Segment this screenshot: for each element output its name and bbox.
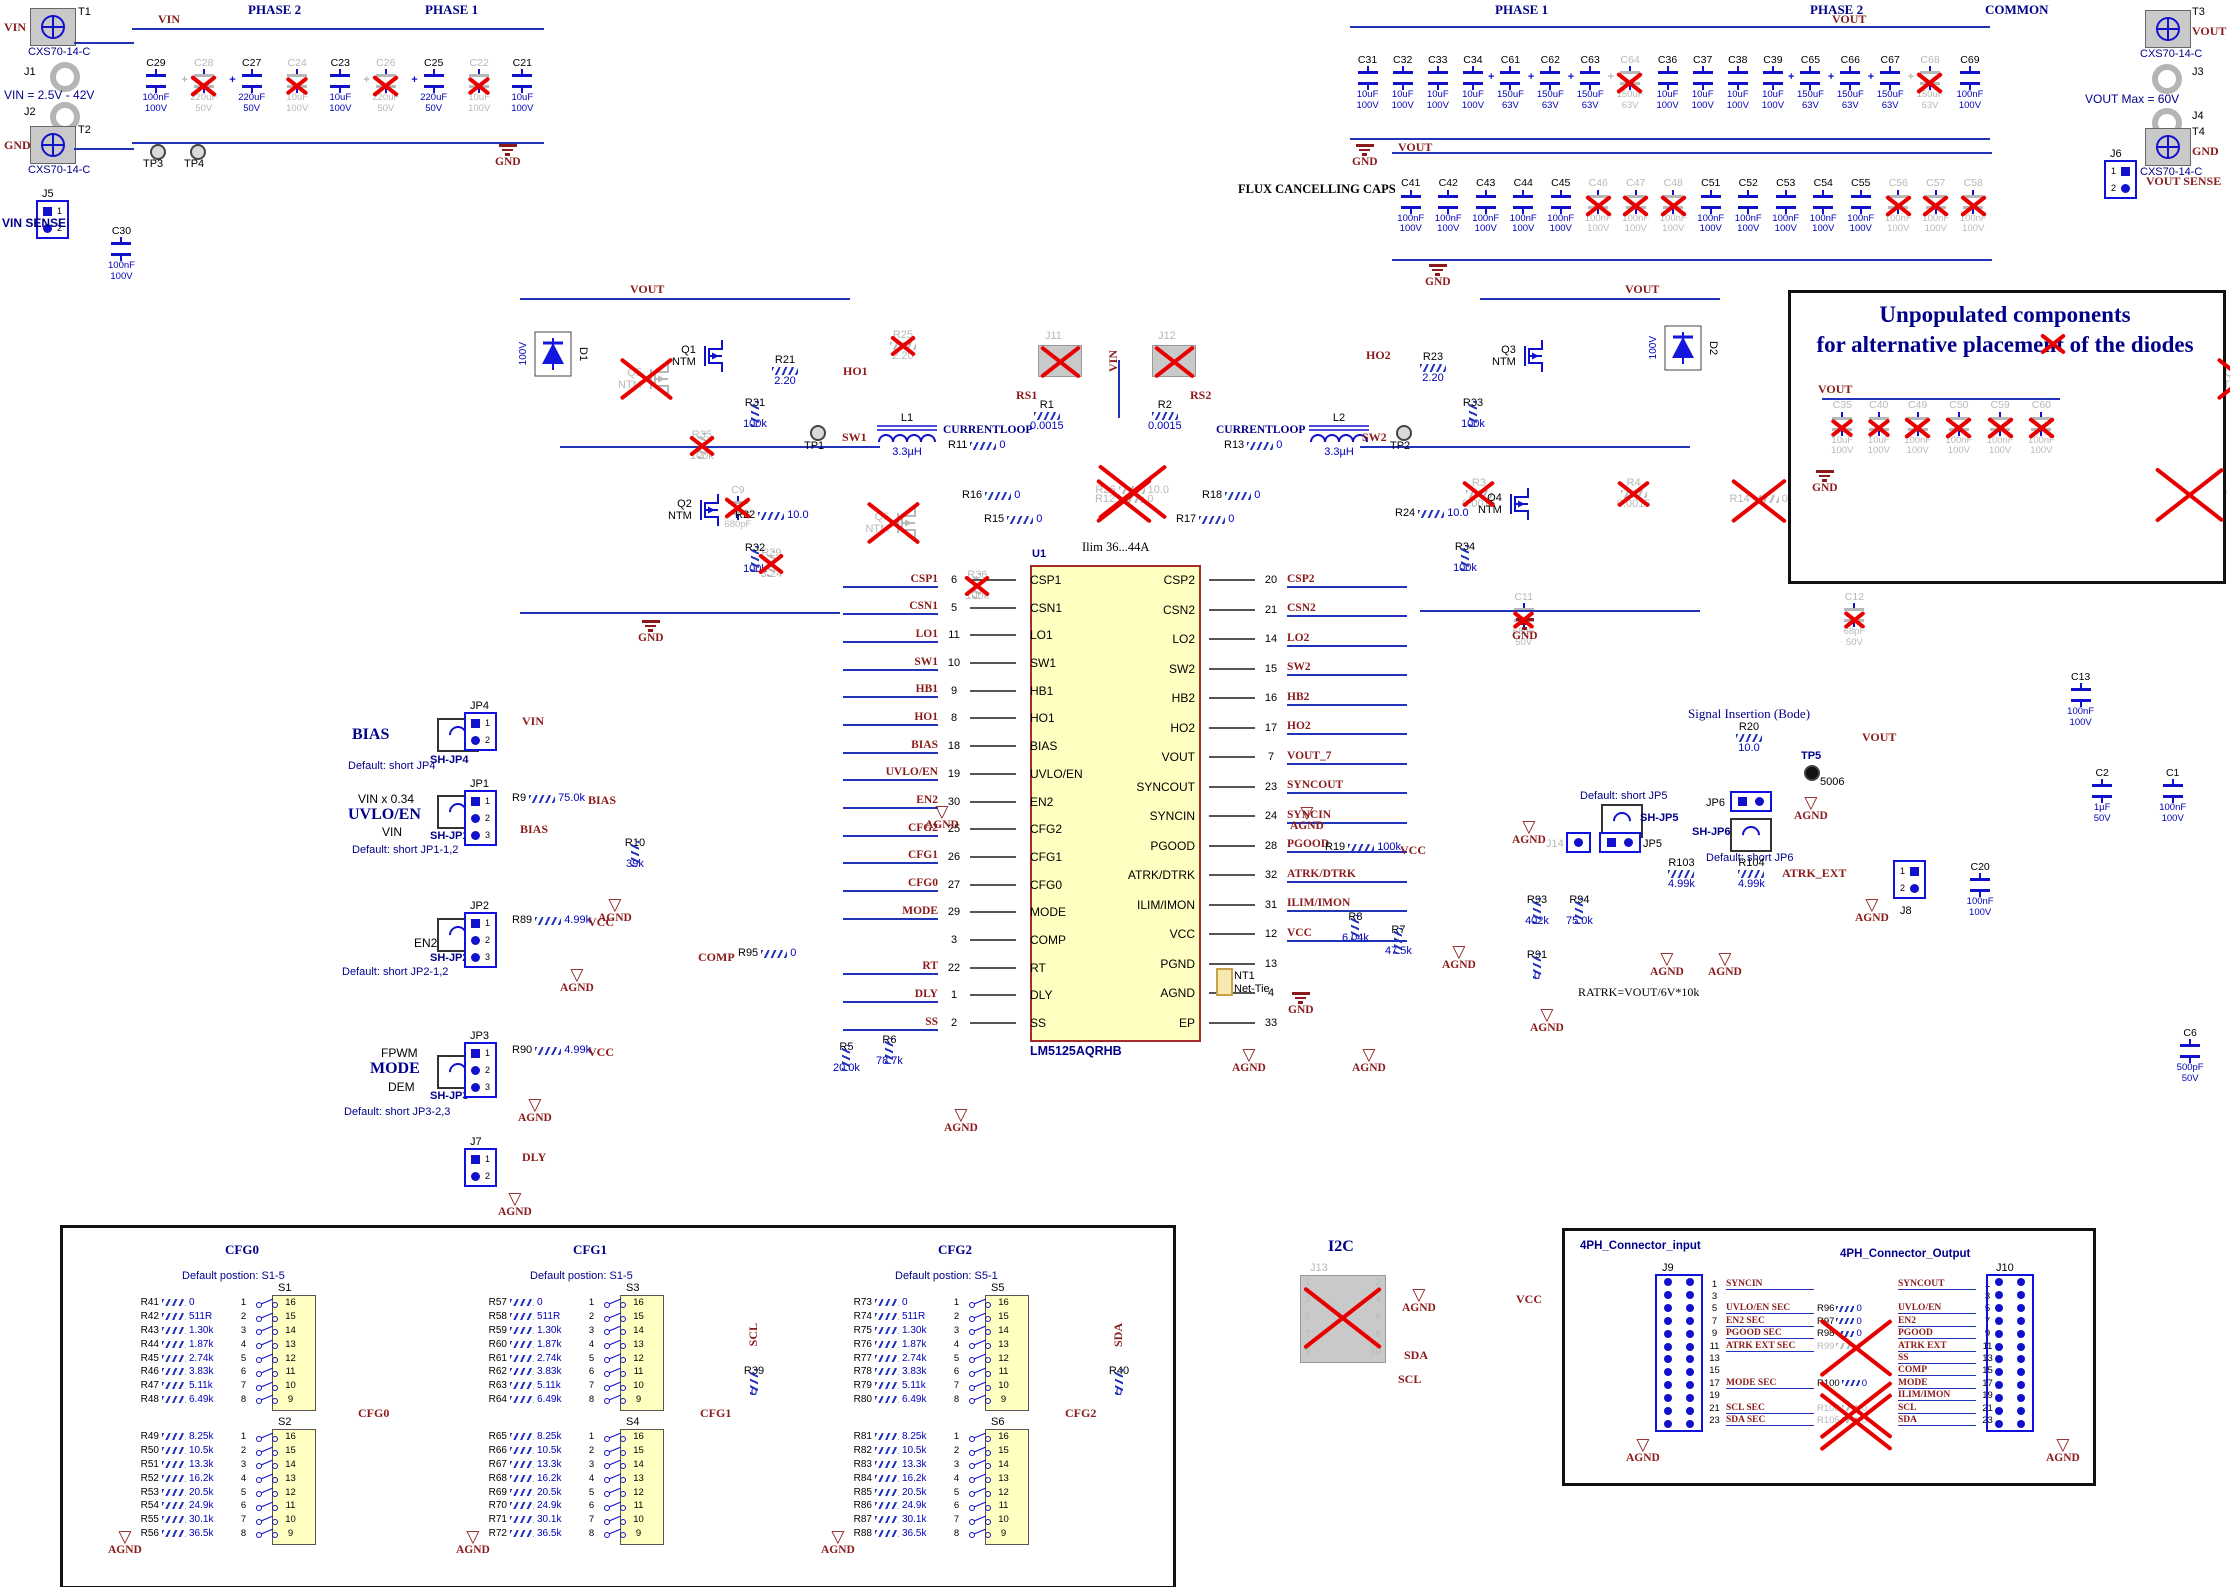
pin-number: 26 bbox=[942, 851, 966, 863]
pin-net-label: UVLO/EN bbox=[843, 766, 938, 781]
j6-ref: J6 bbox=[2110, 148, 2122, 160]
pin-circle bbox=[1664, 1355, 1672, 1363]
vout-sense-label: VOUT SENSE bbox=[2146, 174, 2221, 189]
capacitor: C63150uF63V + bbox=[1577, 55, 1604, 112]
connector-pin-row bbox=[1995, 1276, 2025, 1288]
pin-number: 19 bbox=[1706, 1390, 1723, 1401]
cfg1-net: CFG1 bbox=[700, 1406, 731, 1421]
capacitor-c6: C6500pF50V bbox=[2177, 1028, 2204, 1085]
cfg-row: R806.49k 8 9 bbox=[838, 1393, 1011, 1407]
connector-pin-row bbox=[1995, 1328, 2025, 1340]
pin-circle bbox=[1686, 1291, 1694, 1299]
resistor-ref: R89 bbox=[512, 915, 532, 926]
capacitor-symbol bbox=[1888, 195, 1908, 209]
capacitor: C41100nF100V bbox=[1397, 178, 1424, 235]
capacitor-symbol bbox=[1463, 71, 1483, 85]
pin-number: 13 bbox=[1259, 958, 1283, 970]
connector-pin-row bbox=[1995, 1340, 2025, 1352]
resistor-r31: R31100k bbox=[742, 398, 768, 430]
pin-stub bbox=[1209, 904, 1255, 906]
jp4-vin-net: VIN bbox=[522, 714, 544, 729]
gnd-label: GND bbox=[1352, 157, 1378, 169]
agnd-symbol-c15: ▽AGND bbox=[1290, 806, 1324, 832]
capacitor-symbol bbox=[1738, 195, 1758, 209]
switch-symbol bbox=[602, 1352, 628, 1364]
capacitor-c30: C30100nF100V bbox=[108, 226, 135, 283]
agnd-label: AGND bbox=[1442, 960, 1476, 972]
pin-number: 32 bbox=[1259, 869, 1283, 881]
capacitor: C59100nF100V bbox=[1987, 400, 2014, 457]
agnd-symbol-cfg2: ▽AGND bbox=[821, 1530, 855, 1556]
pin-name: CFG2 bbox=[1030, 822, 1062, 836]
pin-name: CFG0 bbox=[1030, 878, 1062, 892]
resistor-symbol bbox=[875, 1341, 899, 1348]
unpop-title-1: Unpopulated components bbox=[1800, 302, 2210, 328]
switch-symbol bbox=[602, 1338, 628, 1350]
t1-ref: T1 bbox=[78, 6, 91, 18]
capacitor-c1: C1100nF100V bbox=[2159, 768, 2186, 825]
wire bbox=[74, 148, 134, 150]
i2c-title: I2C bbox=[1328, 1238, 1354, 1256]
switch-symbol bbox=[967, 1486, 993, 1498]
pin-name: VOUT bbox=[1107, 750, 1195, 764]
resistor-r18: R180 bbox=[1202, 490, 1260, 501]
pin-number: 23 bbox=[1259, 781, 1283, 793]
resistor-r4: R40.0015 bbox=[1617, 478, 1651, 510]
ic-pin-row: ATRK/DTRK 32 ATRK/DTRK bbox=[1107, 863, 1407, 887]
rs2-label: RS2 bbox=[1190, 388, 1211, 403]
diode-symbol bbox=[530, 328, 576, 380]
pin-circle bbox=[1686, 1330, 1694, 1338]
connector-pin-row bbox=[1995, 1379, 2025, 1391]
ic-pin-row: EP 33 bbox=[1107, 1011, 1407, 1035]
resistor-ref: R1 bbox=[1040, 400, 1054, 411]
vin-net-label: VIN bbox=[4, 20, 26, 35]
pin-net-label: HO2 bbox=[1287, 720, 1407, 735]
switch-symbol bbox=[602, 1486, 628, 1498]
capacitor-symbol bbox=[1763, 71, 1783, 85]
resistor-symbol bbox=[510, 1489, 534, 1496]
pin-name: HO1 bbox=[1030, 711, 1055, 725]
resistor-ref: R11 bbox=[948, 440, 967, 451]
agnd-triangle: ▽ bbox=[935, 805, 948, 819]
sh-jp6-label: SH-JP6 bbox=[1692, 826, 1731, 838]
wire-vin-center bbox=[1118, 360, 1120, 418]
capacitor: C3710uF100V bbox=[1692, 55, 1714, 112]
pin-name: UVLO/EN bbox=[1030, 767, 1083, 781]
comp-net-label: COMP bbox=[698, 950, 735, 965]
pin-number: 8 bbox=[942, 712, 966, 724]
pin-name: VCC bbox=[1107, 927, 1195, 941]
agnd-label: AGND bbox=[925, 820, 959, 832]
ic-pin-row: VOUT 7 VOUT_7 bbox=[1107, 745, 1407, 769]
resistor-value: 10.0 bbox=[1148, 485, 1169, 496]
resistor-symbol bbox=[875, 1313, 899, 1320]
pin-circle bbox=[2017, 1304, 2025, 1312]
agnd-label: AGND bbox=[1232, 1063, 1266, 1075]
sda-net: SDA bbox=[1111, 1323, 1126, 1347]
pin-circle bbox=[1995, 1317, 2003, 1325]
resistor-r9: R975.0k bbox=[512, 793, 585, 804]
gnd-symbol: GND bbox=[1352, 142, 1378, 168]
resistor-symbol bbox=[1351, 915, 1359, 941]
capacitor: C3110uF100V bbox=[1356, 55, 1378, 112]
mosfet-q2: Q2NTM bbox=[668, 492, 724, 528]
resistor-symbol bbox=[510, 1341, 534, 1348]
jp4-ref: JP4 bbox=[470, 700, 489, 712]
agnd-triangle: ▽ bbox=[1522, 820, 1535, 834]
resistor-symbol bbox=[510, 1502, 534, 1509]
pin-number: 22 bbox=[942, 962, 966, 974]
resistor-value: 100k bbox=[1377, 842, 1401, 853]
capacitor-symbol bbox=[1476, 195, 1496, 209]
pin-circle bbox=[1686, 1355, 1694, 1363]
switch-symbol bbox=[254, 1514, 280, 1526]
conn-signal-row: 11 ATRK EXT SEC R990 ATRK EXT 11 bbox=[1706, 1340, 1996, 1352]
conn-signal-row: 3 3 bbox=[1706, 1290, 1996, 1302]
connector-jp4: 1 2 bbox=[464, 712, 497, 751]
pin-name: RT bbox=[1030, 961, 1046, 975]
resistor-symbol bbox=[761, 950, 787, 958]
agnd-triangle: ▽ bbox=[528, 1098, 541, 1112]
cfg-row: R8730.1k 7 10 bbox=[838, 1513, 1011, 1527]
j7-ref: J7 bbox=[470, 1136, 482, 1148]
pin-circle bbox=[1995, 1368, 2003, 1376]
ic-pin-row: SYNCOUT 23 SYNCOUT bbox=[1107, 775, 1407, 799]
cfg-row: R7236.5k 8 9 bbox=[473, 1527, 646, 1541]
capacitor: C2310uF100V bbox=[329, 58, 351, 115]
connector-jp1: 1 2 3 bbox=[464, 790, 497, 846]
cfg1-default: Default postion: S1-5 bbox=[530, 1270, 633, 1282]
resistor-symbol bbox=[875, 1433, 899, 1440]
pin-number: 27 bbox=[942, 879, 966, 891]
testpoint-tp1 bbox=[810, 425, 826, 441]
cfg-row: R570 1 16 bbox=[473, 1296, 646, 1310]
pin-circle bbox=[1995, 1304, 2003, 1312]
resistor-ref: R95 bbox=[738, 948, 758, 959]
pin-name: DLY bbox=[1030, 988, 1052, 1002]
right-net: ATRK EXT bbox=[1898, 1341, 1976, 1352]
pin-net-label: LO2 bbox=[1287, 632, 1407, 647]
vout-bode-label: VOUT bbox=[1862, 730, 1896, 745]
pin-circle bbox=[1995, 1278, 2003, 1286]
cfg-row: R441.87k 4 13 bbox=[125, 1337, 298, 1351]
ic-right-pins: CSP2 20 CSP2 CSN2 21 CSN2 LO2 14 LO2 SW2… bbox=[1107, 568, 1407, 1035]
capacitor: C2410uF100V bbox=[286, 58, 308, 115]
j13-pin-row: 56 bbox=[1305, 1311, 1381, 1326]
mosfet-symbol bbox=[698, 338, 728, 374]
mosfet-q1: Q1NTM bbox=[672, 338, 728, 374]
t4-ref: T4 bbox=[2192, 126, 2205, 138]
wire-vout-left bbox=[520, 298, 850, 300]
capacitor: C56100nF100V bbox=[1885, 178, 1912, 235]
s5-ref: S5 bbox=[991, 1282, 1004, 1294]
capacitor: C47100nF100V bbox=[1622, 178, 1649, 235]
capacitor-symbol bbox=[1908, 417, 1928, 431]
j5-ref: J5 bbox=[42, 188, 54, 200]
pin-name: PGND bbox=[1107, 957, 1195, 971]
capacitor-c13: C13100nF100V bbox=[2067, 672, 2094, 729]
j10-ref: J10 bbox=[1996, 1262, 2014, 1274]
vout-max: VOUT Max = 60V bbox=[2085, 92, 2179, 106]
conn-rows: 1 SYNCIN SYNCOUT 1 3 3 5 UVLO/EN SEC R96… bbox=[1706, 1278, 1996, 1427]
pin-circle bbox=[1686, 1407, 1694, 1415]
capacitor-symbol bbox=[424, 74, 444, 88]
agnd-symbol-c16: ▽AGND bbox=[1352, 1048, 1386, 1074]
capacitor-symbol bbox=[1949, 417, 1969, 431]
capacitor-c12: C1268pF50V bbox=[1844, 592, 1866, 649]
resistor-symbol bbox=[162, 1516, 186, 1523]
cfg-row: R5424.9k 6 11 bbox=[125, 1499, 298, 1513]
capacitor: C2210uF100V bbox=[468, 58, 490, 115]
tp5-value: 5006 bbox=[1820, 776, 1844, 788]
pin-name: HB2 bbox=[1107, 691, 1195, 705]
r89-vcc-net: VCC bbox=[588, 915, 614, 930]
pin-stub bbox=[970, 690, 1016, 692]
pin-circle bbox=[2017, 1381, 2025, 1389]
series-resistor: R980 bbox=[1817, 1328, 1895, 1339]
resistor-symbol bbox=[510, 1313, 534, 1320]
agnd-label: AGND bbox=[1352, 1063, 1386, 1075]
pin-number: 20 bbox=[1259, 574, 1283, 586]
connector-pin-row bbox=[1664, 1340, 1694, 1352]
capacitor-voltage: 50V bbox=[2094, 814, 2111, 825]
j2-ref: J2 bbox=[24, 106, 36, 118]
pin-number bbox=[1630, 1363, 1648, 1375]
resistor-value: 0 bbox=[1014, 490, 1020, 501]
resistor-r25: R252.20 bbox=[890, 330, 916, 362]
switch-symbol bbox=[967, 1338, 993, 1350]
pin-circle bbox=[2017, 1330, 2025, 1338]
capacitor-symbol bbox=[1513, 195, 1533, 209]
conn-signal-row: 7 EN2 SEC R970 EN2 7 bbox=[1706, 1315, 1996, 1327]
ic-pin-row: CSN1 5 CSN1 bbox=[843, 596, 1103, 620]
resistor-symbol bbox=[535, 1047, 561, 1055]
terminal-symbol bbox=[41, 133, 65, 157]
testpoint-tp2 bbox=[1396, 425, 1412, 441]
switch-symbol bbox=[967, 1380, 993, 1392]
resistor-r8: R86.04k bbox=[1342, 912, 1369, 944]
cfg2-bank: CFG2 Default postion: S5-1 S5 R730 1 16 … bbox=[813, 1238, 1123, 1568]
capacitor-voltage: 100V bbox=[110, 272, 132, 283]
switch-symbol bbox=[967, 1352, 993, 1364]
resistor-value: 4.99k bbox=[1738, 879, 1765, 890]
fet-type: NTM bbox=[1492, 356, 1516, 368]
pin-number bbox=[2036, 1400, 2054, 1412]
capacitor-symbol bbox=[1728, 71, 1748, 85]
left-net: PGOOD SEC bbox=[1726, 1328, 1814, 1339]
right-net: UVLO/EN bbox=[1898, 1303, 1976, 1314]
terminal-symbol bbox=[41, 15, 65, 39]
switch-symbol bbox=[602, 1324, 628, 1336]
agnd-label: AGND bbox=[821, 1545, 855, 1557]
resistor-symbol bbox=[1034, 412, 1060, 420]
agnd-symbol-c18: ▽AGND bbox=[1650, 952, 1684, 978]
j8-ref: J8 bbox=[1900, 905, 1912, 917]
pin-net-label: CSP1 bbox=[843, 573, 938, 588]
agnd-triangle: ▽ bbox=[1660, 952, 1673, 966]
resistor-ref: R21 bbox=[775, 355, 795, 366]
mosfet-symbol bbox=[1518, 338, 1548, 374]
j13-pin-row: 78 bbox=[1305, 1329, 1381, 1344]
capacitor-symbol bbox=[469, 74, 489, 88]
resistor-symbol bbox=[510, 1355, 534, 1362]
pin-circle bbox=[1995, 1291, 2003, 1299]
cfg-row: R475.11k 7 10 bbox=[125, 1379, 298, 1393]
pin-net-label: RT bbox=[843, 960, 938, 975]
resistor-symbol bbox=[1753, 495, 1779, 503]
resistor-value: 0.0015 bbox=[1148, 421, 1182, 432]
capacitor-symbol bbox=[512, 74, 532, 88]
agnd-symbol-ratrk: ▽AGND bbox=[1530, 1008, 1564, 1034]
pin-circle bbox=[1664, 1304, 1672, 1312]
pin-circle bbox=[2017, 1355, 2025, 1363]
capacitor-voltage: 50V bbox=[2182, 1074, 2199, 1085]
phase2-label: PHASE 2 bbox=[248, 2, 301, 18]
capacitor-c2: C21µF50V bbox=[2092, 768, 2112, 825]
pin-circle bbox=[1995, 1407, 2003, 1415]
t3-ref: T3 bbox=[2192, 6, 2205, 18]
j13-pin-row: 910 bbox=[1305, 1346, 1381, 1361]
pin-number: 7 bbox=[1259, 751, 1283, 763]
capacitor: C61150uF63V + bbox=[1497, 55, 1524, 112]
resistor-value: 2.20 bbox=[1422, 373, 1443, 384]
capacitor: C62150uF63V + bbox=[1537, 55, 1564, 112]
switch-symbol bbox=[967, 1527, 993, 1539]
terminal-t1 bbox=[30, 8, 76, 46]
resistor-r10: R1039k bbox=[622, 838, 648, 870]
capacitor-symbol bbox=[2092, 784, 2112, 798]
resistor-symbol bbox=[162, 1355, 186, 1362]
unpop-cap-bank: C3510uF100V C4010uF100V C49100nF100V C50… bbox=[1824, 400, 2062, 457]
agnd-triangle: ▽ bbox=[954, 1108, 967, 1122]
j4-ref: J4 bbox=[2192, 110, 2204, 122]
agnd-label: AGND bbox=[518, 1113, 552, 1125]
j13-pin-row: 34 bbox=[1305, 1294, 1381, 1309]
pin-net-label: VOUT_7 bbox=[1287, 750, 1407, 765]
cfg2-title: CFG2 bbox=[938, 1242, 972, 1258]
resistor-symbol bbox=[985, 492, 1011, 500]
resistor-r16: R160 bbox=[962, 490, 1020, 501]
pin-stub bbox=[970, 939, 1016, 941]
pin-number: 2 bbox=[942, 1017, 966, 1029]
mosfet-q5: Q5NTM bbox=[618, 361, 674, 397]
conn-signal-row: 15 COMP 15 bbox=[1706, 1365, 1996, 1377]
resistor-ref: R15 bbox=[984, 514, 1004, 525]
resistor-symbol bbox=[162, 1396, 186, 1403]
pin-stub bbox=[970, 856, 1016, 858]
connector-jp5 bbox=[1599, 832, 1641, 853]
resistor-r34: R34100k bbox=[1452, 542, 1478, 574]
connector-jp2: 1 2 3 bbox=[464, 912, 497, 968]
resistor-symbol bbox=[1418, 510, 1444, 518]
pin-name: PGOOD bbox=[1107, 839, 1195, 853]
cfg-row: R783.83k 6 11 bbox=[838, 1365, 1011, 1379]
ic-pin-row: CFG0 27 CFG0 bbox=[843, 873, 1103, 897]
capacitor-ref: C6 bbox=[2183, 1028, 2196, 1040]
resistor-ref: R104 bbox=[1738, 858, 1764, 869]
en2-label: EN2 bbox=[414, 936, 437, 950]
pin-stub bbox=[1209, 933, 1255, 935]
pin-number bbox=[2036, 1412, 2054, 1424]
agnd-triangle: ▽ bbox=[1636, 1438, 1649, 1452]
inductor-ref: L2 bbox=[1333, 412, 1345, 424]
pin-circle bbox=[1686, 1317, 1694, 1325]
capacitor-symbol bbox=[1580, 71, 1600, 85]
resistor-value: 0 bbox=[1276, 440, 1282, 451]
cfg1-bank: CFG1 Default postion: S1-5 S3 R570 1 16 … bbox=[448, 1238, 758, 1568]
capacitor: C42100nF100V bbox=[1435, 178, 1462, 235]
pin-name: CSP2 bbox=[1107, 573, 1195, 587]
pin-circle bbox=[1686, 1394, 1694, 1402]
left-net: SYNCIN bbox=[1726, 1279, 1814, 1290]
cfg0-rows1: R410 1 16 R42511R 2 15 R431.30k 3 14 R44… bbox=[125, 1296, 298, 1406]
mode-fpwm: FPWM bbox=[381, 1046, 418, 1060]
agnd-label: AGND bbox=[944, 1123, 978, 1135]
pin-net-label: CFG0 bbox=[843, 877, 938, 892]
switch-symbol bbox=[254, 1338, 280, 1350]
agnd-label: AGND bbox=[1290, 821, 1324, 833]
gnd-label: GND bbox=[495, 157, 521, 169]
pin-circle bbox=[2017, 1394, 2025, 1402]
fet-type: NTM bbox=[618, 379, 642, 391]
agnd-triangle: ▽ bbox=[1362, 1048, 1375, 1062]
switch-symbol bbox=[602, 1527, 628, 1539]
flux-caps-label: FLUX CANCELLING CAPS bbox=[1238, 182, 1396, 197]
switch-symbol bbox=[967, 1431, 993, 1443]
switch-symbol bbox=[967, 1500, 993, 1512]
ic-pin-row: HB1 9 HB1 bbox=[843, 679, 1103, 703]
cfg-row: R635.11k 7 10 bbox=[473, 1379, 646, 1393]
pin-number bbox=[2036, 1338, 2054, 1350]
j3-ref: J3 bbox=[2192, 66, 2204, 78]
resistor-r11: R110 bbox=[948, 440, 1006, 451]
resistor-value: 0 bbox=[1228, 514, 1234, 525]
resistor-symbol bbox=[1152, 412, 1178, 420]
pin-stub bbox=[1209, 609, 1255, 611]
pin-name: CSN2 bbox=[1107, 603, 1195, 617]
switch-symbol bbox=[254, 1297, 280, 1309]
pin-number bbox=[1630, 1301, 1648, 1313]
cfg-row: R498.25k 1 16 bbox=[125, 1430, 298, 1444]
agnd-symbol-c17: ▽AGND bbox=[1442, 945, 1476, 971]
switch-symbol bbox=[602, 1366, 628, 1378]
switch-symbol bbox=[967, 1445, 993, 1457]
cfg-row: R8416.2k 4 13 bbox=[838, 1471, 1011, 1485]
pin-name: BIAS bbox=[1030, 739, 1057, 753]
switch-symbol bbox=[602, 1445, 628, 1457]
pin-name: COMP bbox=[1030, 933, 1066, 947]
agnd-triangle: ▽ bbox=[466, 1530, 479, 1544]
connector-j14 bbox=[1566, 832, 1591, 853]
capacitor-symbol bbox=[1844, 608, 1864, 622]
resistor-symbol bbox=[1736, 734, 1762, 742]
cfg-row: R5216.2k 4 13 bbox=[125, 1471, 298, 1485]
connector-pin-row bbox=[1995, 1315, 2025, 1327]
cfg-row: R772.74k 5 12 bbox=[838, 1351, 1011, 1365]
cfg-row: R623.83k 6 11 bbox=[473, 1365, 646, 1379]
capacitor: C69100nF100V bbox=[1956, 55, 1983, 112]
resistor-value: 0 bbox=[790, 948, 796, 959]
jp6-ref: JP6 bbox=[1706, 797, 1725, 809]
mode-title: MODE bbox=[370, 1060, 420, 1078]
r9-bias-net: BIAS bbox=[588, 793, 616, 808]
right-net: SDA bbox=[1898, 1415, 1976, 1426]
pin-circle bbox=[1664, 1407, 1672, 1415]
gnd-net-label-out: GND bbox=[2192, 144, 2219, 159]
connector-j10 bbox=[1986, 1274, 2034, 1432]
capacitor-symbol bbox=[1540, 71, 1560, 85]
